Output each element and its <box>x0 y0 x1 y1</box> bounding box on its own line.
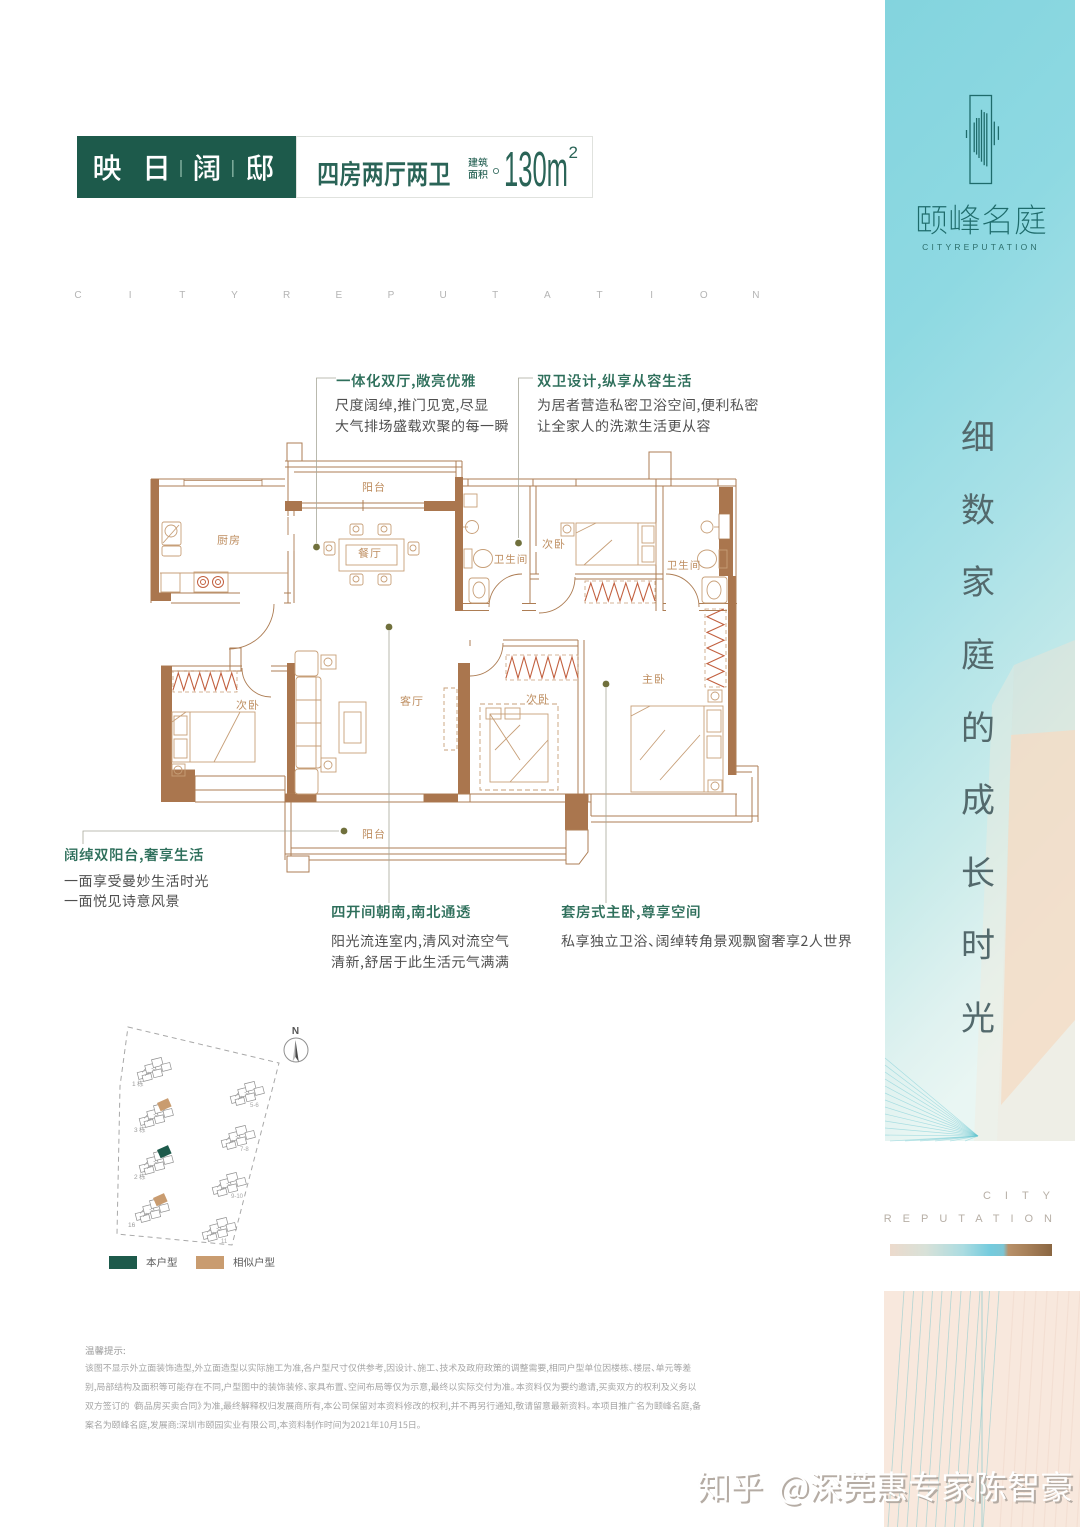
svg-text:I: I <box>129 290 132 301</box>
svg-text:7-8: 7-8 <box>240 1147 249 1153</box>
svg-text:C: C <box>74 290 81 301</box>
svg-text:N: N <box>752 290 759 301</box>
svg-text:T: T <box>596 290 602 301</box>
svg-text:130m: 130m <box>504 143 568 197</box>
svg-text:I: I <box>650 290 653 301</box>
svg-text:Y: Y <box>231 290 238 301</box>
svg-text:T: T <box>179 290 185 301</box>
svg-text:P: P <box>388 290 395 301</box>
svg-text:R: R <box>283 290 290 301</box>
svg-text:2: 2 <box>134 1174 138 1181</box>
svg-text:A: A <box>544 290 551 301</box>
svg-text:N: N <box>292 1026 299 1037</box>
svg-text:1: 1 <box>132 1081 136 1088</box>
svg-text:T: T <box>492 290 498 301</box>
svg-text:CITYREPUTATION: CITYREPUTATION <box>922 242 1040 252</box>
svg-text:U: U <box>439 290 446 301</box>
svg-text:16: 16 <box>128 1222 136 1229</box>
svg-text:CITY: CITY <box>983 1190 1064 1202</box>
svg-text:E: E <box>335 290 342 301</box>
svg-text:2: 2 <box>569 143 578 162</box>
svg-text:O: O <box>700 290 708 301</box>
svg-text:9-10: 9-10 <box>231 1194 244 1200</box>
svg-text:3: 3 <box>134 1127 138 1134</box>
svg-text:11: 11 <box>221 1239 228 1245</box>
svg-text:REPUTATION: REPUTATION <box>884 1213 1063 1225</box>
svg-text:5-6: 5-6 <box>250 1103 259 1109</box>
